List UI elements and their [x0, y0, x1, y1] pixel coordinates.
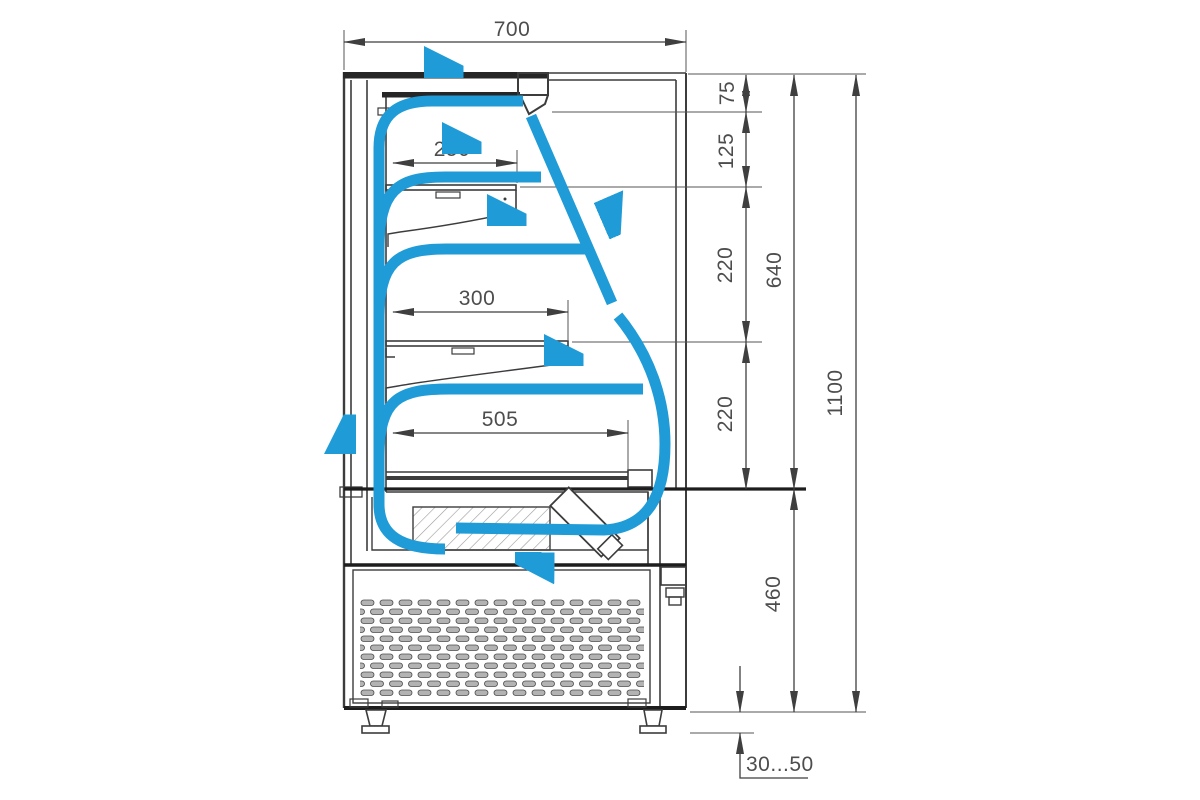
- dim-label-75: 75: [716, 81, 739, 105]
- drawing-canvas: 700 250 300 505 75 125 220 220 640 460 1…: [0, 0, 1200, 800]
- air-outlet-nozzle: [520, 95, 548, 114]
- shelf-2-price-strip: [452, 348, 474, 354]
- machine-base: [344, 565, 686, 708]
- dim-label-460: 460: [762, 576, 785, 613]
- feet: [362, 710, 666, 733]
- dim-label-1100: 1100: [824, 369, 847, 416]
- foot-right: [640, 710, 666, 733]
- airflow-riser-to-canopy: [379, 101, 523, 549]
- display-case-section-drawing: 700 250 300 505 75 125 220 220 640 460 1…: [0, 0, 1200, 800]
- front-edge: [676, 73, 686, 708]
- dim-label-700: 700: [494, 18, 531, 41]
- dim-label-505: 505: [482, 408, 519, 431]
- dim-label-220b: 220: [714, 396, 737, 433]
- airflow-air-curtain: [531, 116, 612, 303]
- dim-label-250: 250: [434, 138, 471, 161]
- dim-label-feet-range: 30...50: [746, 753, 814, 776]
- electrical-box: [661, 567, 686, 605]
- shelf-1-price-strip: [436, 192, 460, 198]
- dim-label-300: 300: [459, 287, 496, 310]
- foot-left: [362, 710, 389, 733]
- airflow-arrows: [379, 101, 665, 549]
- dim-label-640: 640: [763, 252, 786, 289]
- shelf-1-bracket: [388, 212, 514, 247]
- return-air-grille: [628, 470, 652, 487]
- dim-label-220a: 220: [714, 247, 737, 284]
- deck: [344, 470, 806, 489]
- shelf-1: [386, 185, 516, 247]
- ventilation-grille: [360, 598, 644, 698]
- dim-label-125: 125: [715, 133, 738, 170]
